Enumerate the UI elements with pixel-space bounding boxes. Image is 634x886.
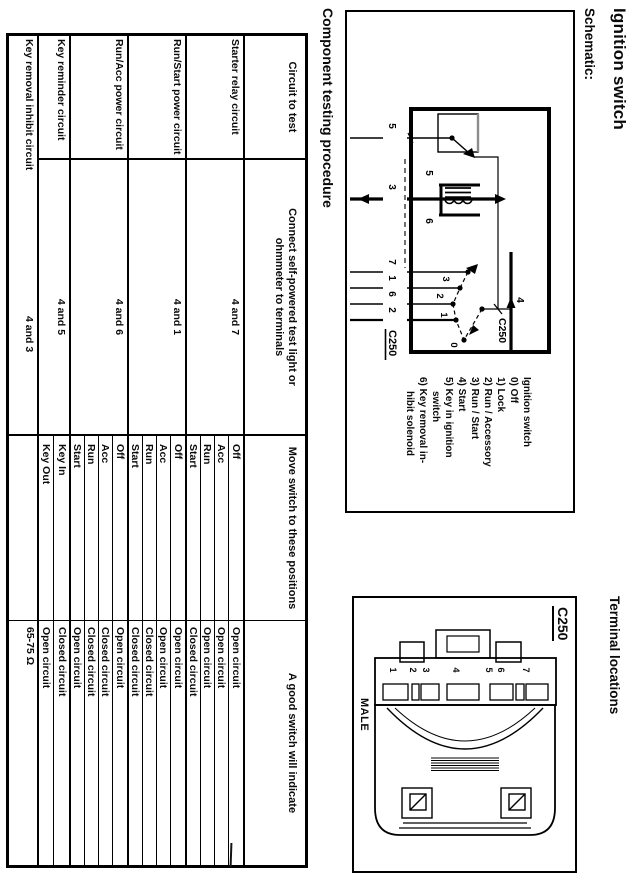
position-label-0: 0	[448, 342, 459, 347]
component-testing-heading: Component testing procedure	[320, 8, 336, 208]
test-subrow: AccClosed circuit	[99, 436, 113, 865]
component-label-solenoid: 6	[423, 218, 434, 224]
latch-window	[402, 788, 531, 818]
position-cell: Off	[171, 436, 185, 621]
terminal-label-7: 7	[386, 259, 397, 265]
connector-drawing	[354, 598, 575, 871]
result-cell: Open circuit	[201, 621, 214, 865]
result-cell: Closed circuit	[129, 621, 142, 865]
test-subrow: OffOpen circuit	[113, 436, 127, 865]
table-body: Starter relay circuit4 and 7OffOpen circ…	[9, 36, 245, 865]
result-cell: Closed circuit	[99, 621, 112, 865]
table-row: Key removal inhibit circuit4 and 365-75 …	[9, 36, 39, 865]
table-row: Run/Start power circuit4 and 1OffOpen ci…	[129, 36, 187, 865]
test-subrow: OffOpen circuit	[229, 436, 243, 865]
test-subrow: RunOpen circuit	[201, 436, 215, 865]
header-circuit: Circuit to test	[245, 36, 305, 160]
table-header-row: Circuit to test Connect self-powered tes…	[245, 36, 305, 865]
test-subrow: RunClosed circuit	[143, 436, 157, 865]
lock-tab	[436, 630, 490, 658]
position-cell: Start	[187, 436, 200, 621]
circuit-cell: Key reminder circuit	[39, 36, 69, 160]
terminals-value: 4 and 3	[23, 316, 35, 352]
position-cell: Acc	[157, 436, 170, 621]
wire-terminal-5	[350, 133, 452, 143]
test-subrow: AccOpen circuit	[215, 436, 229, 865]
position-cell: Start	[129, 436, 142, 621]
terminal-label-4: 4	[514, 297, 525, 303]
terminal-label-1: 1	[386, 275, 397, 281]
position-label-3: 3	[440, 276, 451, 281]
position-cell: Start	[71, 436, 84, 621]
circuit-cell: Run/Acc power circuit	[71, 36, 127, 160]
page-title: Ignition switch	[609, 8, 629, 130]
schematic-frame: 5 3 7 1 6 2 4 5 6 0 1 2 3 C250 C250 Igni…	[345, 10, 575, 513]
housing-band	[375, 658, 556, 705]
grip-ridges	[431, 758, 499, 771]
header-move: Move switch to these positions	[245, 436, 305, 621]
schematic-heading: Schematic:	[582, 8, 597, 80]
result-cell: Open circuit	[157, 621, 170, 865]
terminal-locations-heading: Terminal locations	[607, 596, 622, 714]
position-cell: Off	[229, 436, 243, 621]
table-row: Run/Acc power circuit4 and 6OffOpen circ…	[71, 36, 129, 865]
result-cell: Closed circuit	[54, 621, 69, 865]
legend-line: hibit solenoid	[403, 377, 416, 467]
circuit-cell: Key removal inhibit circuit4 and 3	[9, 36, 37, 436]
scanned-page: Ignition switch Schematic: Terminal loca…	[0, 0, 634, 886]
terminal-label-6: 6	[386, 291, 397, 297]
result-cell: 65-75 Ω	[9, 621, 37, 865]
terminal-label-2: 2	[386, 307, 397, 313]
terminals-cell: 4 and 6	[71, 160, 127, 436]
table-row: Starter relay circuit4 and 7OffOpen circ…	[187, 36, 245, 865]
result-cell: Open circuit	[215, 621, 228, 865]
legend-line: 2) Run / Accessory	[481, 377, 494, 467]
position-label-1: 1	[438, 312, 449, 318]
result-cell: Open circuit	[113, 621, 127, 865]
terminal-slots	[383, 684, 548, 700]
test-subrow: Key InClosed circuit	[54, 436, 69, 865]
wire-terminal-3	[350, 194, 506, 204]
terminals-cell: 4 and 5	[39, 160, 69, 436]
position-cell: Off	[113, 436, 127, 621]
position-cell: Run	[85, 436, 98, 621]
legend-line: Ignition switch	[520, 377, 533, 467]
position-cell: Key In	[54, 436, 69, 621]
test-subrow: StartClosed circuit	[129, 436, 143, 865]
arrow-up-icon	[495, 194, 506, 204]
wiper-contacts	[450, 264, 482, 343]
ignition-switch-body	[411, 109, 549, 352]
component-label-key-in: 5	[423, 170, 434, 176]
mount-tab	[496, 642, 521, 662]
header-connect: Connect self-powered test light or ohmme…	[245, 160, 305, 436]
result-cell: Open circuit	[229, 621, 243, 865]
test-subrow: Key OutOpen circuit	[39, 436, 54, 865]
terminal-label-5: 5	[386, 123, 397, 129]
terminal-locations-frame: C250 MALE 7654321	[352, 596, 577, 873]
result-cell: Closed circuit	[143, 621, 156, 865]
legend-line: 3) Run / Start	[468, 377, 481, 467]
position-label-2: 2	[434, 293, 445, 298]
legend-line: 5) Key in ignition	[442, 377, 455, 467]
legend-line: 6) Key removal in-	[416, 377, 429, 467]
test-subrow: StartOpen circuit	[71, 436, 85, 865]
feed-connector-label: C250	[496, 318, 508, 343]
test-subrow: OffOpen circuit	[171, 436, 185, 865]
mount-tab	[400, 642, 424, 662]
legend-line: switch	[429, 377, 442, 467]
table-row: Key reminder circuit4 and 5Key InClosed …	[39, 36, 71, 865]
test-subrow: RunClosed circuit	[85, 436, 99, 865]
position-cell	[9, 436, 37, 621]
result-cell: Open circuit	[39, 621, 53, 865]
position-cell: Acc	[99, 436, 112, 621]
connector-label-c250: C250	[386, 330, 398, 356]
legend-line: 1) Lock	[494, 377, 507, 467]
legend-line: 4) Start	[455, 377, 468, 467]
circuit-cell: Starter relay circuit	[187, 36, 243, 160]
arrow-down-icon	[358, 194, 369, 204]
result-cell: Open circuit	[171, 621, 185, 865]
result-cell: Closed circuit	[187, 621, 200, 865]
result-cell: Closed circuit	[85, 621, 98, 865]
key-in-switch-box	[438, 114, 478, 152]
header-indicate: A good switch will indicate	[245, 621, 305, 865]
test-subrow: 65-75 Ω	[9, 436, 37, 865]
position-cell: Key Out	[39, 436, 53, 621]
testing-table: Circuit to test Connect self-powered tes…	[6, 33, 308, 868]
test-subrow: StartClosed circuit	[187, 436, 201, 865]
position-cell: Run	[143, 436, 156, 621]
circuit-cell: Run/Start power circuit	[129, 36, 185, 160]
legend-line: 0) Off	[507, 377, 520, 467]
circuit-name: Key removal inhibit circuit	[23, 39, 35, 170]
position-cell: Acc	[215, 436, 228, 621]
terminal-label-3: 3	[386, 184, 397, 190]
result-cell: Open circuit	[71, 621, 84, 865]
terminals-cell: 4 and 7	[187, 160, 243, 436]
schematic-legend: Ignition switch0) Off1) Lock2) Run / Acc…	[403, 377, 533, 467]
terminals-cell: 4 and 1	[129, 160, 185, 436]
position-cell: Run	[201, 436, 214, 621]
test-subrow: AccOpen circuit	[157, 436, 171, 865]
